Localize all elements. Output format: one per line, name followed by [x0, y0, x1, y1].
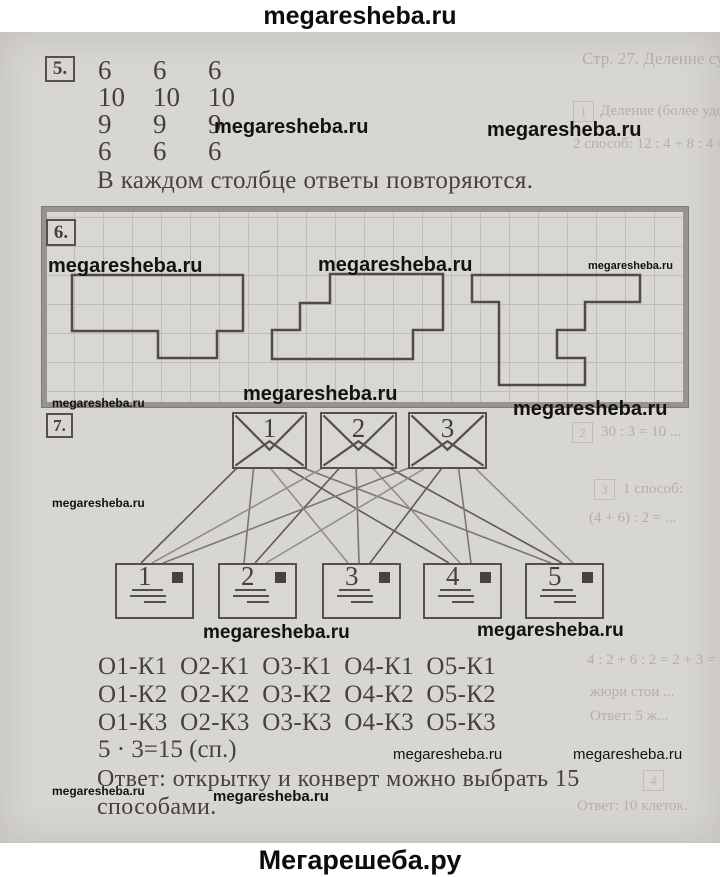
- postcard-4: 4: [423, 563, 502, 619]
- underline: [542, 589, 573, 591]
- ghost-text: Ответ: 10 клеток.: [577, 798, 688, 815]
- watermark: megaresheba.ru: [52, 397, 145, 409]
- answer-cell: 6: [98, 57, 153, 84]
- problem-5-note: В каждом столбце ответы повторяются.: [97, 167, 533, 195]
- watermark: megaresheba.ru: [203, 623, 350, 642]
- postcard-number: 4: [446, 563, 460, 590]
- answer-text-line-1: Ответ: открытку и конверт можно выбрать …: [97, 766, 580, 793]
- ghost-text: жюри стои ...: [590, 684, 674, 701]
- answer-cell: 6: [208, 138, 263, 165]
- problem-5-label: 5.: [45, 56, 75, 82]
- stamp-icon: [379, 572, 390, 583]
- equation: 5 · 3=15 (сп.): [98, 736, 237, 764]
- site-header: megaresheba.ru: [0, 0, 720, 32]
- address-line: [554, 601, 576, 603]
- envelope-2: 2: [320, 412, 397, 469]
- address-line: [540, 595, 576, 597]
- underline: [339, 589, 370, 591]
- answer-cell: 6: [98, 138, 153, 165]
- answer-cell: 9: [98, 111, 153, 138]
- site-footer: Мегарешеба.ру: [0, 843, 720, 877]
- ghost-problem-number: 4: [643, 770, 664, 791]
- ghost-text: (4 + 6) : 2 = ...: [589, 510, 676, 527]
- watermark: megaresheba.ru: [477, 621, 624, 640]
- answer-row: 666: [98, 138, 263, 165]
- envelope-number: 3: [441, 415, 455, 442]
- postcard-1: 1: [115, 563, 194, 619]
- postcard-number: 2: [241, 563, 255, 590]
- watermark: megaresheba.ru: [393, 747, 502, 762]
- problem-6-label: 6.: [46, 219, 76, 246]
- postcard-5: 5: [525, 563, 604, 619]
- address-line: [144, 601, 166, 603]
- problem-6-grid-box: [42, 207, 688, 407]
- problem-7-label: 7.: [46, 413, 73, 438]
- combinations-row-3: О1-К3 О2-К3 О3-К3 О4-К3 О5-К3: [98, 709, 496, 737]
- watermark: megaresheba.ru: [318, 255, 473, 275]
- answer-row: 666: [98, 57, 263, 84]
- ghost-text: 1 способ:: [623, 481, 683, 498]
- envelope-1: 1: [232, 412, 307, 469]
- envelope-number: 2: [352, 415, 366, 442]
- watermark: megaresheba.ru: [213, 789, 329, 804]
- stamp-icon: [172, 572, 183, 583]
- problem-5-answer-grid: 666 101010 999 666: [98, 57, 263, 165]
- watermark: megaresheba.ru: [52, 497, 145, 509]
- ghost-text: 4 : 2 + 6 : 2 = 2 + 3 = 5: [587, 652, 720, 669]
- watermark: megaresheba.ru: [48, 256, 203, 276]
- watermark: megaresheba.ru: [573, 747, 682, 762]
- address-line: [247, 601, 269, 603]
- answer-row: 101010: [98, 84, 263, 111]
- answer-cell: 6: [208, 57, 263, 84]
- stamp-icon: [480, 572, 491, 583]
- stamp-icon: [275, 572, 286, 583]
- underline: [235, 589, 266, 591]
- ghost-text: Деление (более удобный): [600, 103, 720, 120]
- underline: [440, 589, 471, 591]
- postcard-2: 2: [218, 563, 297, 619]
- postcard-number: 3: [345, 563, 359, 590]
- watermark: megaresheba.ru: [214, 117, 369, 137]
- answer-cell: 9: [153, 111, 208, 138]
- address-line: [130, 595, 166, 597]
- ghost-problem-number: 3: [594, 479, 615, 500]
- watermark: megaresheba.ru: [513, 399, 668, 419]
- envelope-3: 3: [408, 412, 487, 469]
- site-header-watermark: megaresheba.ru: [263, 2, 456, 31]
- answer-cell: 10: [98, 84, 153, 111]
- address-line: [438, 595, 474, 597]
- address-line: [233, 595, 269, 597]
- ghost-problem-number: 2: [572, 422, 593, 443]
- watermark: megaresheba.ru: [52, 785, 145, 797]
- ghost-text: 30 : 3 = 10 ...: [601, 424, 681, 441]
- watermark: megaresheba.ru: [588, 261, 673, 272]
- page: megaresheba.ru 5. 666 101010 999 666 В к…: [0, 0, 720, 877]
- watermark: megaresheba.ru: [243, 384, 398, 404]
- answer-text-line-2: способами.: [97, 794, 217, 821]
- ghost-text: Ответ: 5 ж...: [590, 708, 668, 725]
- underline: [132, 589, 163, 591]
- postcard-3: 3: [322, 563, 401, 619]
- answer-cell: 6: [153, 138, 208, 165]
- answer-cell: 10: [153, 84, 208, 111]
- envelope-number: 1: [263, 415, 277, 442]
- stamp-icon: [582, 572, 593, 583]
- watermark: megaresheba.ru: [487, 120, 642, 140]
- address-line: [351, 601, 373, 603]
- address-line: [337, 595, 373, 597]
- combinations-row-1: О1-К1 О2-К1 О3-К1 О4-К1 О5-К1: [98, 653, 496, 681]
- answer-cell: 6: [153, 57, 208, 84]
- postcard-number: 5: [548, 563, 562, 590]
- ghost-text: Стр. 27. Деление суммы на число: [582, 50, 720, 69]
- site-footer-brand: Мегарешеба.ру: [259, 845, 462, 876]
- address-line: [452, 601, 474, 603]
- postcard-number: 1: [138, 563, 152, 590]
- combinations-row-2: О1-К2 О2-К2 О3-К2 О4-К2 О5-К2: [98, 681, 496, 709]
- answer-cell: 10: [208, 84, 263, 111]
